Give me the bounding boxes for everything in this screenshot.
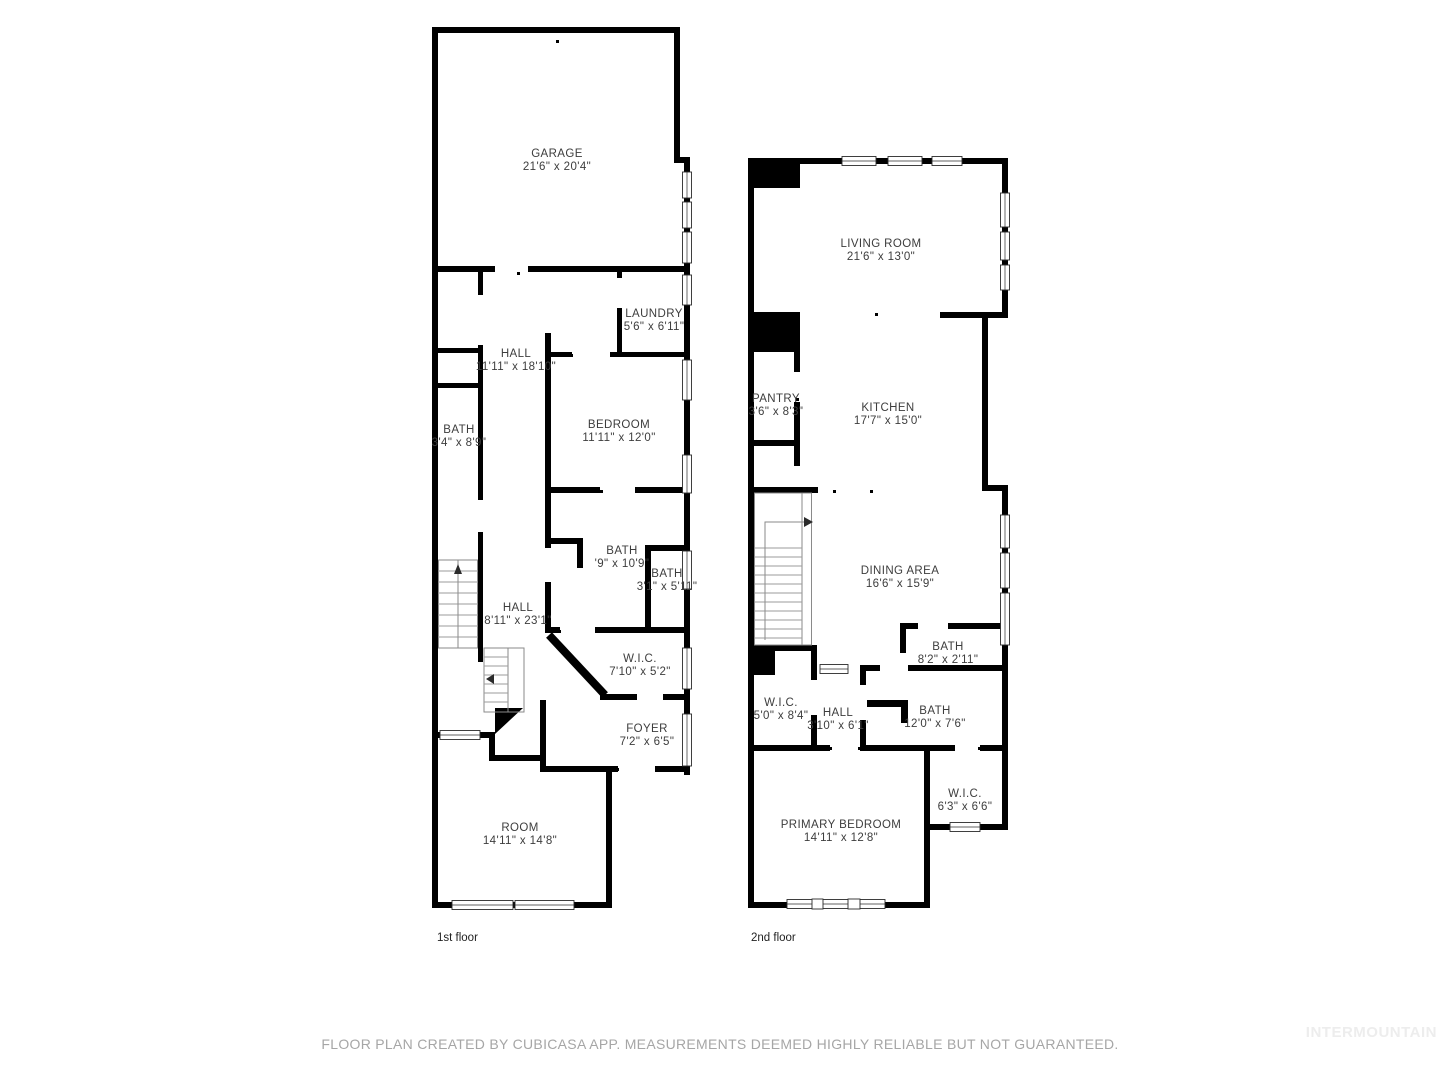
svg-text:W.I.C.: W.I.C. xyxy=(623,653,657,665)
room-label-bedroom: BEDROOM 11'11" x 12'0" xyxy=(582,419,655,444)
svg-text:16'6" x 15'9": 16'6" x 15'9" xyxy=(866,578,934,590)
room-labels-first-floor: GARAGE 21'6" x 20'4" HALL 11'11" x 18'10… xyxy=(432,148,698,847)
disclaimer-text: FLOOR PLAN CREATED BY CUBICASA APP. MEAS… xyxy=(0,1036,1440,1052)
svg-text:HALL: HALL xyxy=(823,707,854,719)
room-label-wic-east: W.I.C. 6'3" x 6'6" xyxy=(938,788,993,813)
svg-text:17'7" x 15'0": 17'7" x 15'0" xyxy=(854,415,922,427)
second-floor-label: 2nd floor xyxy=(751,932,796,944)
svg-text:8'2" x 2'11": 8'2" x 2'11" xyxy=(918,654,979,666)
svg-text:14'11" x 14'8": 14'11" x 14'8" xyxy=(483,835,557,847)
svg-text:14'11" x 12'8": 14'11" x 12'8" xyxy=(804,832,878,844)
room-label-bath-upper: BATH 8'2" x 2'11" xyxy=(918,641,979,666)
floor-plan-canvas: GARAGE 21'6" x 20'4" HALL 11'11" x 18'10… xyxy=(0,0,1440,1080)
room-label-bath-middle: BATH '9" x 10'9" xyxy=(595,545,650,570)
svg-text:3'4" x 8'9": 3'4" x 8'9" xyxy=(432,437,487,449)
svg-text:7'2" x 6'5": 7'2" x 6'5" xyxy=(620,736,675,748)
room-label-living-room: LIVING ROOM 21'6" x 13'0" xyxy=(840,238,921,263)
svg-text:5'0" x 8'4": 5'0" x 8'4" xyxy=(754,710,809,722)
room-label-hall-upper: HALL 11'11" x 18'10" xyxy=(476,348,556,373)
floor-plan-page: GARAGE 21'6" x 20'4" HALL 11'11" x 18'10… xyxy=(0,0,1440,1080)
svg-text:6'3" x 6'6": 6'3" x 6'6" xyxy=(938,801,993,813)
svg-text:11'11" x 12'0": 11'11" x 12'0" xyxy=(582,432,655,444)
room-label-pantry: PANTRY 3'6" x 8'3" xyxy=(749,393,804,418)
svg-text:BEDROOM: BEDROOM xyxy=(588,419,650,431)
svg-text:HALL: HALL xyxy=(503,602,534,614)
svg-text:BATH: BATH xyxy=(651,568,682,580)
svg-text:11'11" x 18'10": 11'11" x 18'10" xyxy=(476,361,556,373)
room-label-garage: GARAGE 21'6" x 20'4" xyxy=(523,148,591,173)
diagonal-wall xyxy=(549,635,605,695)
room-label-room: ROOM 14'11" x 14'8" xyxy=(483,822,557,847)
svg-text:LAUNDRY: LAUNDRY xyxy=(625,308,683,320)
svg-text:8'11" x 23'1": 8'11" x 23'1" xyxy=(484,615,551,627)
svg-text:PRIMARY BEDROOM: PRIMARY BEDROOM xyxy=(781,819,902,831)
room-label-primary-bedroom: PRIMARY BEDROOM 14'11" x 12'8" xyxy=(781,819,902,844)
room-label-wic: W.I.C. 7'10" x 5'2" xyxy=(609,653,670,678)
wall-openings-second-floor xyxy=(793,372,980,752)
svg-text:BATH: BATH xyxy=(443,424,474,436)
room-label-kitchen: KITCHEN 17'7" x 15'0" xyxy=(854,402,922,427)
svg-text:BATH: BATH xyxy=(932,641,963,653)
svg-text:LIVING ROOM: LIVING ROOM xyxy=(840,238,921,250)
svg-text:KITCHEN: KITCHEN xyxy=(861,402,914,414)
svg-text:3'1" x 5'11": 3'1" x 5'11" xyxy=(637,581,698,593)
svg-text:21'6" x 20'4": 21'6" x 20'4" xyxy=(523,161,591,173)
svg-text:3'6" x 8'3": 3'6" x 8'3" xyxy=(749,406,804,418)
room-label-bath-main: BATH 12'0" x 7'6" xyxy=(904,705,965,730)
stairs-second-floor xyxy=(755,493,814,645)
svg-text:12'0" x 7'6": 12'0" x 7'6" xyxy=(904,718,965,730)
room-label-laundry: LAUNDRY 5'6" x 6'11" xyxy=(624,308,685,333)
svg-text:HALL: HALL xyxy=(501,348,532,360)
svg-text:7'10" x 5'2": 7'10" x 5'2" xyxy=(609,666,670,678)
watermark-intermountain: INTERMOUNTAIN xyxy=(1306,1024,1437,1041)
room-label-foyer: FOYER 7'2" x 6'5" xyxy=(620,723,675,748)
svg-text:ROOM: ROOM xyxy=(501,822,538,834)
svg-text:'9" x 10'9": '9" x 10'9" xyxy=(595,558,650,570)
second-floor-plan: LIVING ROOM 21'6" x 13'0" PANTRY 3'6" x … xyxy=(748,157,1010,945)
svg-text:BATH: BATH xyxy=(919,705,950,717)
svg-text:BATH: BATH xyxy=(606,545,637,557)
svg-text:W.I.C.: W.I.C. xyxy=(764,697,798,709)
room-label-dining-area: DINING AREA 16'6" x 15'9" xyxy=(861,565,940,590)
first-floor-plan: GARAGE 21'6" x 20'4" HALL 11'11" x 18'10… xyxy=(432,27,698,944)
svg-text:W.I.C.: W.I.C. xyxy=(948,788,982,800)
svg-text:PANTRY: PANTRY xyxy=(752,393,800,405)
svg-text:FOYER: FOYER xyxy=(626,723,668,735)
svg-text:3'10" x 6'1": 3'10" x 6'1" xyxy=(807,720,868,732)
room-label-wic-west: W.I.C. 5'0" x 8'4" xyxy=(754,697,809,722)
svg-text:21'6" x 13'0": 21'6" x 13'0" xyxy=(847,251,915,263)
svg-text:DINING AREA: DINING AREA xyxy=(861,565,940,577)
svg-text:GARAGE: GARAGE xyxy=(531,148,583,160)
svg-text:5'6" x 6'11": 5'6" x 6'11" xyxy=(624,321,685,333)
first-floor-label: 1st floor xyxy=(437,932,478,944)
room-label-hall-lower: HALL 8'11" x 23'1" xyxy=(484,602,551,627)
